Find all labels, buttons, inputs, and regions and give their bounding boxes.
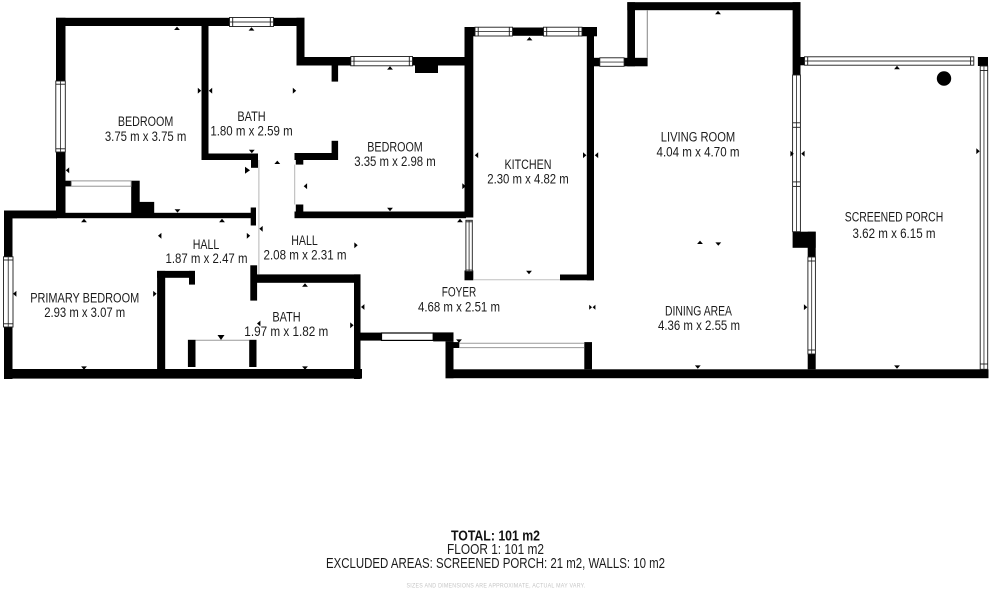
svg-text:2.30 m x 4.82 m: 2.30 m x 4.82 m xyxy=(487,172,569,187)
svg-text:2.93 m x 3.07 m: 2.93 m x 3.07 m xyxy=(44,305,125,320)
svg-text:SCREENED PORCH: SCREENED PORCH xyxy=(845,210,944,225)
svg-text:3.75 m x 3.75 m: 3.75 m x 3.75 m xyxy=(105,129,187,144)
svg-text:FOYER: FOYER xyxy=(442,285,477,300)
svg-text:BEDROOM: BEDROOM xyxy=(118,114,174,129)
svg-text:1.97 m x 1.82 m: 1.97 m x 1.82 m xyxy=(244,324,328,339)
svg-text:DINING AREA: DINING AREA xyxy=(665,304,732,319)
svg-text:EXCLUDED AREAS: SCREENED PORCH: EXCLUDED AREAS: SCREENED PORCH: 21 m2, W… xyxy=(326,556,665,572)
svg-text:HALL: HALL xyxy=(193,237,220,252)
svg-text:1.87 m x 2.47 m: 1.87 m x 2.47 m xyxy=(166,251,248,266)
svg-text:BATH: BATH xyxy=(272,310,300,325)
svg-text:3.35 m x 2.98 m: 3.35 m x 2.98 m xyxy=(354,154,436,169)
svg-text:2.08 m x 2.31 m: 2.08 m x 2.31 m xyxy=(264,247,347,262)
svg-text:LIVING ROOM: LIVING ROOM xyxy=(661,130,736,145)
svg-text:BEDROOM: BEDROOM xyxy=(367,140,423,155)
svg-text:4.68 m x 2.51 m: 4.68 m x 2.51 m xyxy=(418,300,500,315)
svg-text:BATH: BATH xyxy=(237,109,265,124)
svg-text:HALL: HALL xyxy=(291,233,318,248)
svg-text:1.80 m x 2.59 m: 1.80 m x 2.59 m xyxy=(210,124,292,139)
svg-text:SIZES AND DIMENSIONS ARE APPRO: SIZES AND DIMENSIONS ARE APPROXIMATE, AC… xyxy=(407,583,586,590)
svg-text:PRIMARY BEDROOM: PRIMARY BEDROOM xyxy=(30,291,139,306)
svg-text:4.36 m x 2.55 m: 4.36 m x 2.55 m xyxy=(658,318,740,333)
svg-text:KITCHEN: KITCHEN xyxy=(505,157,552,172)
svg-text:4.04 m x 4.70 m: 4.04 m x 4.70 m xyxy=(657,145,740,160)
svg-text:3.62 m x 6.15 m: 3.62 m x 6.15 m xyxy=(853,226,936,241)
